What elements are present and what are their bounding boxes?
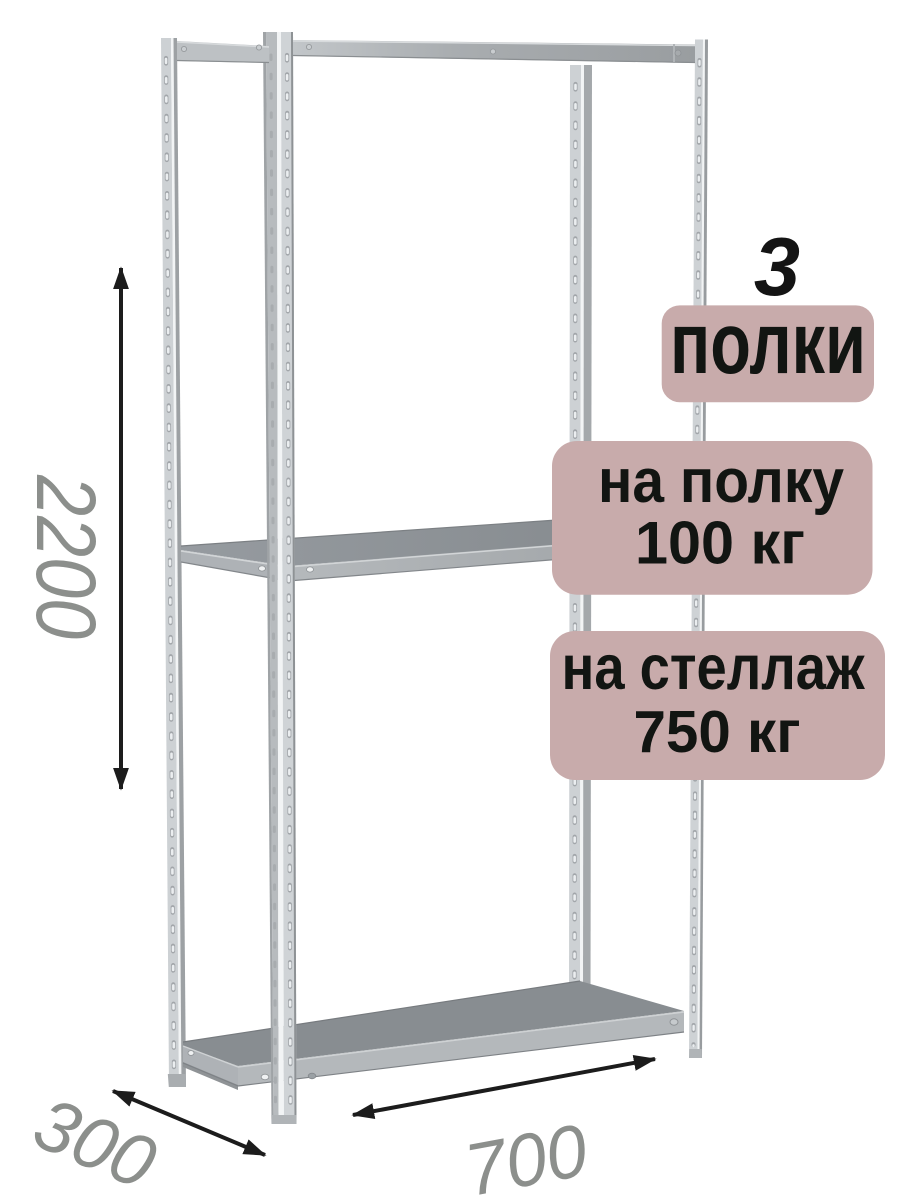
svg-text:на полку: на полку bbox=[598, 447, 844, 516]
svg-text:100 кг: 100 кг bbox=[635, 510, 805, 577]
svg-text:750 кг: 750 кг bbox=[634, 699, 801, 765]
svg-text:на стеллаж: на стеллаж bbox=[562, 633, 866, 703]
svg-text:полки: полки bbox=[670, 295, 866, 392]
svg-text:2200: 2200 bbox=[19, 474, 113, 639]
